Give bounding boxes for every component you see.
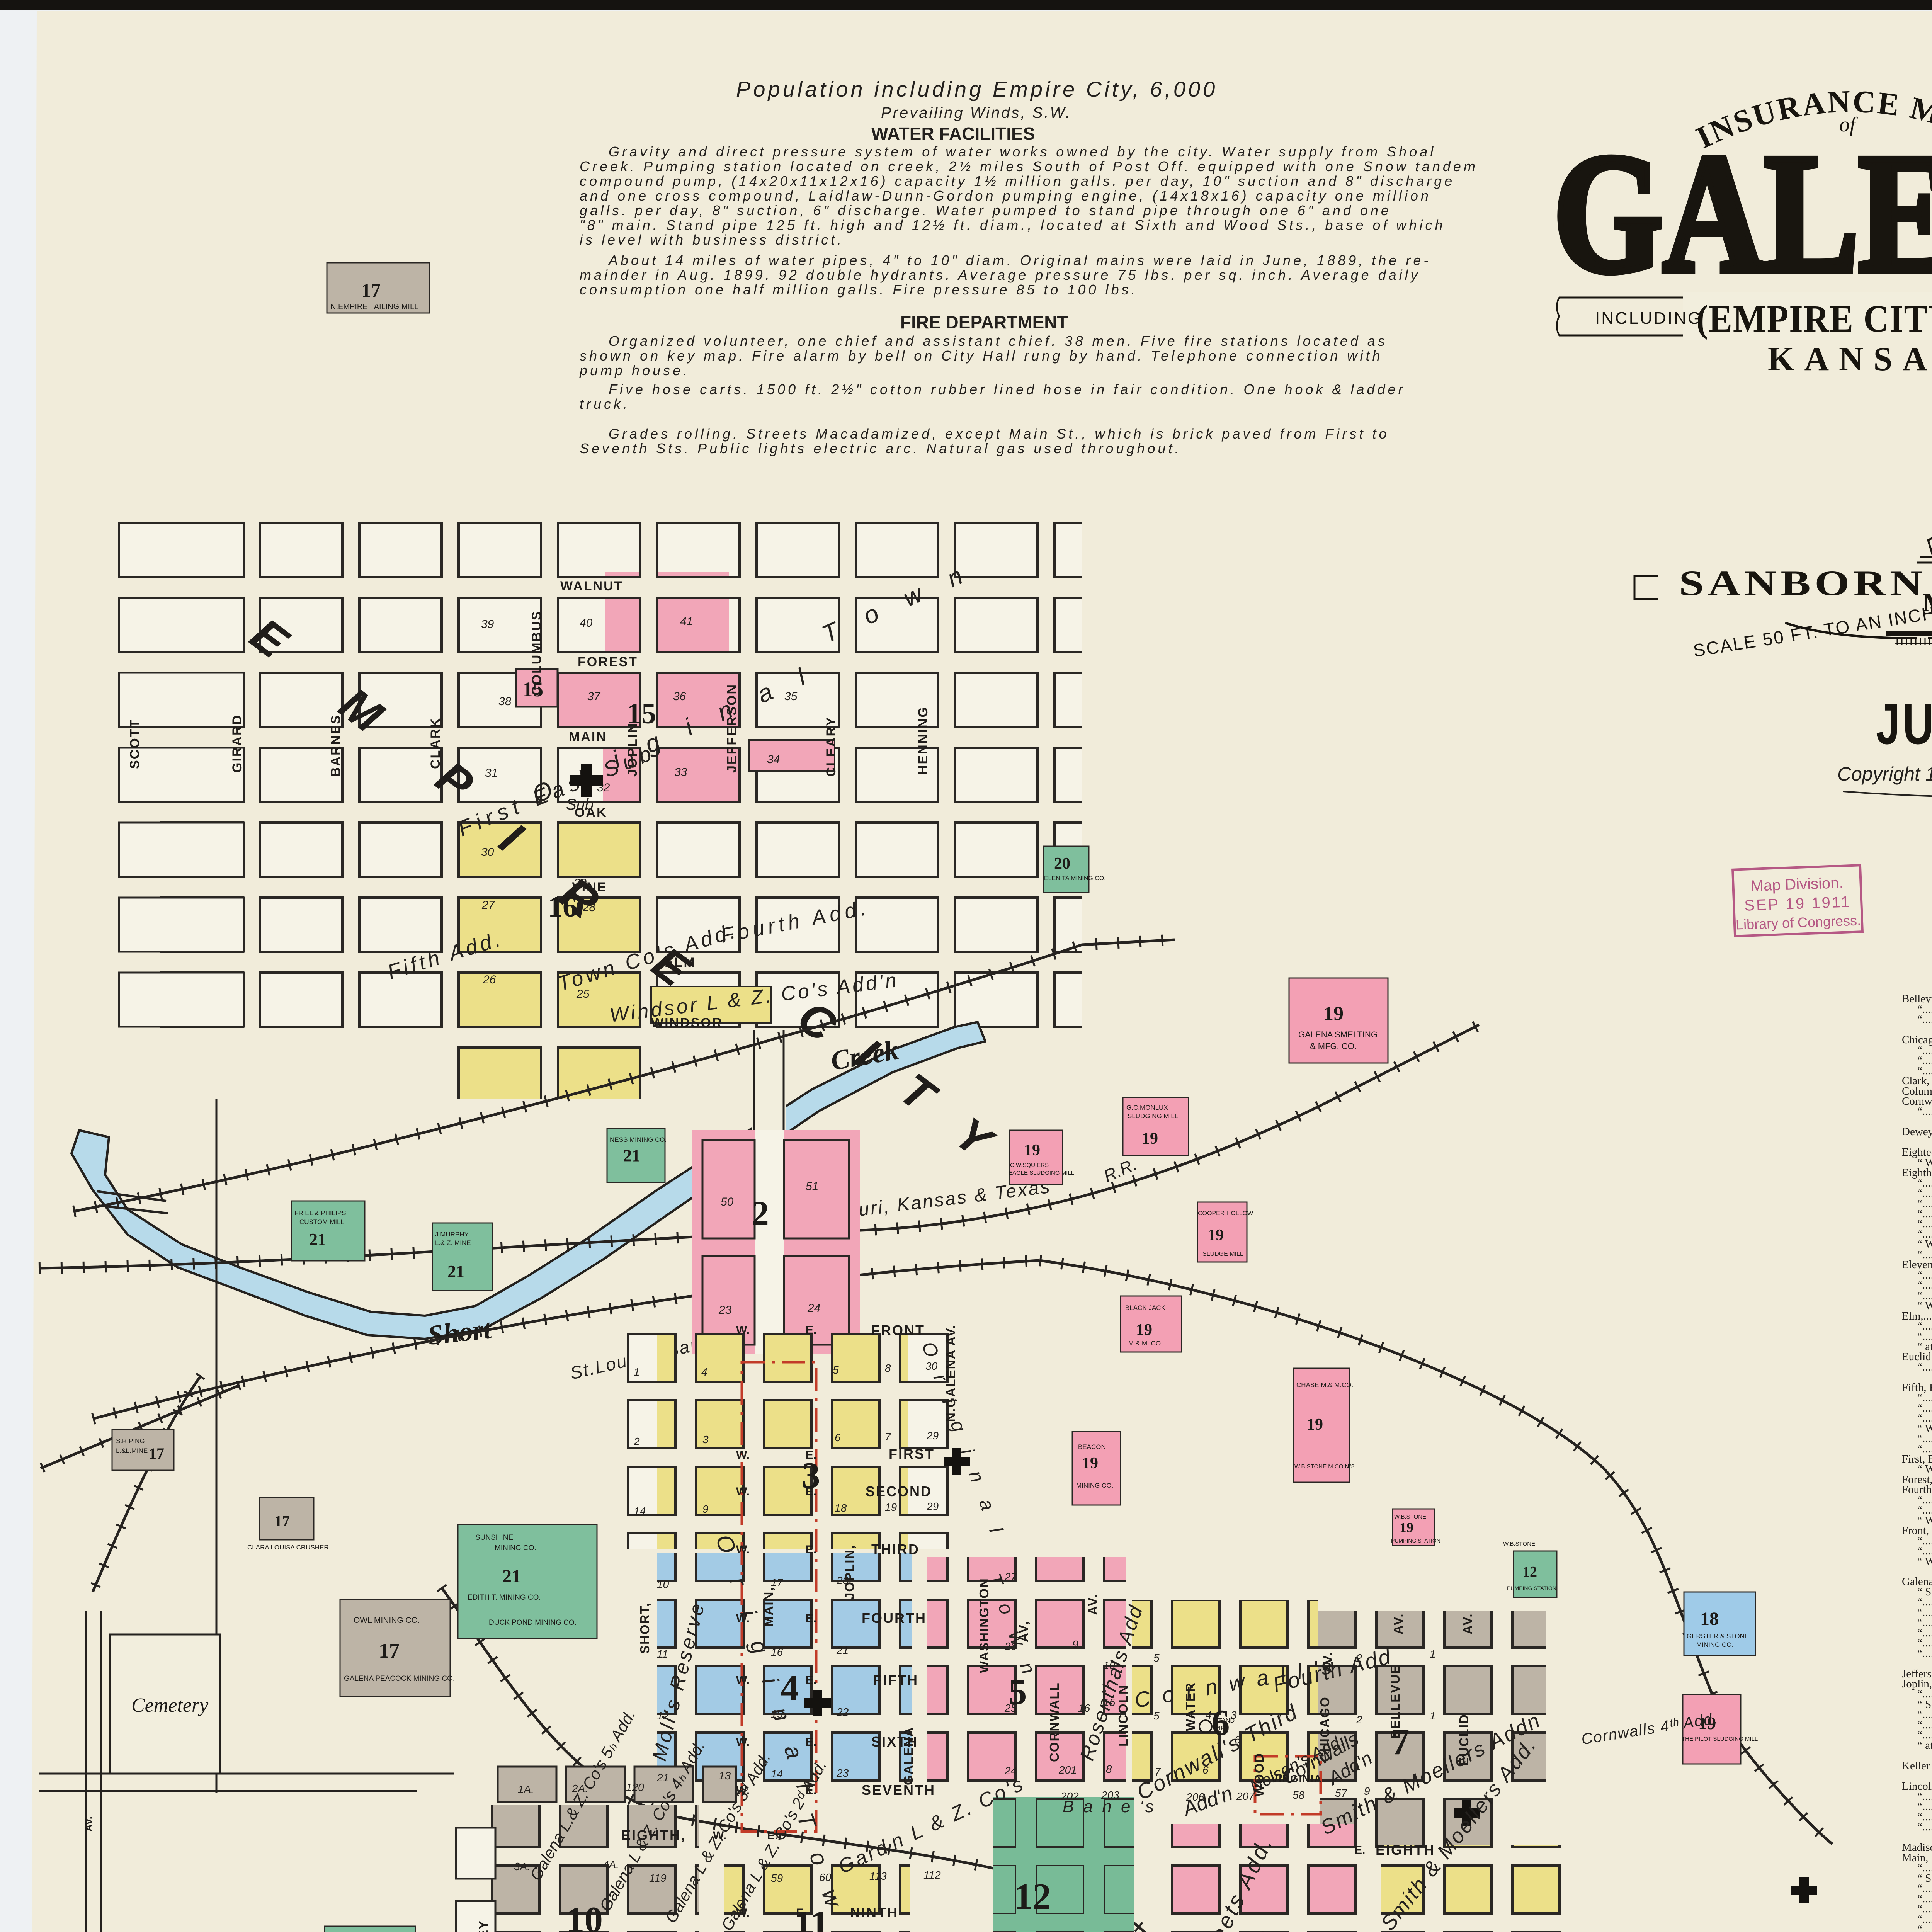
svg-text:1: 1 [1430, 1710, 1436, 1722]
svg-text:Population including Empire Ci: Population including Empire City, 6,000 [736, 77, 1218, 101]
svg-text:1: 1 [1430, 1648, 1436, 1660]
svg-text:19: 19 [1207, 1226, 1224, 1244]
svg-text:GALENA PEACOCK MINING CO.: GALENA PEACOCK MINING CO. [344, 1675, 455, 1683]
svg-text:W.B.STONE: W.B.STONE [1394, 1514, 1426, 1520]
svg-text:SECOND: SECOND [866, 1483, 932, 1499]
svg-text:6: 6 [1235, 1734, 1241, 1746]
svg-text:GERSTER & STONE: GERSTER & STONE [1687, 1633, 1749, 1640]
svg-text:N.EMPIRE TAILING MILL: N.EMPIRE TAILING MILL [330, 303, 418, 311]
svg-text:OWL MINING CO.: OWL MINING CO. [354, 1616, 420, 1625]
svg-text:WALNUT: WALNUT [560, 579, 623, 594]
svg-text:36: 36 [673, 690, 686, 703]
svg-text:6: 6 [835, 1432, 841, 1444]
svg-text:15: 15 [627, 697, 656, 730]
svg-text:202: 202 [1060, 1790, 1079, 1802]
svg-text:PIPE: PIPE [1215, 1725, 1229, 1732]
svg-text:19: 19 [1142, 1130, 1158, 1148]
svg-text:17: 17 [149, 1445, 164, 1462]
svg-text:30: 30 [481, 846, 494, 859]
svg-text:14: 14 [771, 1768, 783, 1780]
svg-text:FIRE DEPARTMENT: FIRE DEPARTMENT [900, 312, 1068, 332]
svg-text:CUSTOM MILL: CUSTOM MILL [299, 1218, 344, 1226]
svg-text:26: 26 [1004, 1640, 1017, 1652]
svg-text:31: 31 [485, 767, 498, 779]
svg-text:CORNWALL: CORNWALL [1047, 1682, 1061, 1762]
svg-text:2A.: 2A. [571, 1782, 588, 1794]
svg-text:Keller Ave.,..................: Keller Ave.,............................… [1902, 1760, 1932, 1772]
svg-text:4: 4 [701, 1366, 707, 1378]
svg-text:23: 23 [718, 1304, 732, 1316]
svg-text:W.: W. [736, 1674, 750, 1687]
svg-text:WINDSOR: WINDSOR [651, 1015, 723, 1030]
svg-text:NESS MINING CO.: NESS MINING CO. [610, 1136, 667, 1143]
svg-text:7: 7 [885, 1431, 891, 1443]
svg-text:SHORT,: SHORT, [638, 1602, 652, 1654]
svg-text:21: 21 [656, 1772, 669, 1784]
svg-text:Seventh Sts. Public lights el: Seventh Sts. Public lights electric arc.… [580, 440, 1182, 456]
svg-text:21: 21 [623, 1146, 640, 1165]
svg-text:120: 120 [626, 1781, 644, 1793]
svg-text:60: 60 [819, 1871, 832, 1883]
svg-text:E.: E. [806, 1612, 816, 1625]
svg-text:“.............................: “.......................................… [1917, 1013, 1932, 1026]
svg-text:17: 17 [771, 1577, 784, 1588]
svg-text:17: 17 [379, 1639, 400, 1662]
svg-text:21: 21 [836, 1644, 849, 1656]
svg-text:JEFFERSON: JEFFERSON [724, 684, 739, 773]
svg-text:G.C.MONLUX: G.C.MONLUX [1126, 1104, 1168, 1111]
svg-text:Organized volunteer, one chief: Organized volunteer, one chief and assis… [609, 333, 1388, 349]
svg-text:E.: E. [796, 1906, 807, 1919]
svg-text:113: 113 [869, 1870, 887, 1882]
svg-text:13: 13 [719, 1770, 731, 1782]
svg-text:30: 30 [925, 1360, 938, 1372]
svg-text:29: 29 [926, 1500, 939, 1512]
svg-text:SCOTT: SCOTT [128, 719, 142, 769]
svg-text:W.: W. [736, 1449, 750, 1461]
svg-text:35: 35 [784, 690, 798, 703]
svg-text:29: 29 [926, 1430, 939, 1442]
svg-text:20: 20 [1054, 855, 1070, 872]
svg-text:DUCK POND MINING CO.: DUCK POND MINING CO. [489, 1619, 577, 1627]
svg-text:3: 3 [1231, 1709, 1237, 1721]
svg-text:COOPER HOLLOW: COOPER HOLLOW [1198, 1210, 1253, 1217]
svg-text:GALENA: GALENA [1553, 119, 1932, 308]
svg-text:207: 207 [1236, 1790, 1255, 1802]
svg-text:Cemetery: Cemetery [131, 1694, 209, 1716]
svg-text:21: 21 [447, 1262, 464, 1281]
svg-text:38: 38 [498, 695, 512, 708]
svg-text:EIGHTH: EIGHTH [1376, 1842, 1435, 1858]
svg-text:201: 201 [1058, 1764, 1077, 1776]
svg-text:5: 5 [1153, 1652, 1160, 1664]
svg-text:21: 21 [502, 1566, 521, 1587]
svg-text:AV.: AV. [1391, 1613, 1405, 1634]
svg-text:21: 21 [309, 1230, 326, 1249]
svg-text:4A.: 4A. [603, 1859, 619, 1871]
svg-text:BARNES: BARNES [328, 714, 343, 777]
svg-text:1: 1 [634, 1366, 640, 1378]
svg-text:16: 16 [1078, 1702, 1090, 1714]
svg-text:pump house.: pump house. [579, 362, 690, 378]
svg-text:is level with business distric: is level with business district. [580, 232, 844, 248]
svg-text:GIRARD: GIRARD [230, 714, 245, 773]
svg-text:22: 22 [836, 1706, 849, 1718]
svg-text:1A.: 1A. [518, 1783, 534, 1795]
svg-text:“ at Empire City,..........: “ at Empire City,.......................… [1917, 1739, 1932, 1752]
svg-text:2: 2 [752, 1194, 769, 1233]
svg-text:M.& M. CO.: M.& M. CO. [1128, 1340, 1163, 1347]
svg-text:E.: E. [1354, 1844, 1365, 1857]
svg-text:8: 8 [1106, 1763, 1112, 1775]
svg-text:206: 206 [1186, 1791, 1204, 1803]
svg-text:10: 10 [1103, 1660, 1116, 1672]
svg-text:2: 2 [1356, 1714, 1362, 1726]
svg-text:41: 41 [680, 615, 693, 628]
svg-text:& MFG. CO.: & MFG. CO. [1310, 1041, 1357, 1051]
svg-text:L.&L.MINE: L.&L.MINE [116, 1447, 148, 1454]
svg-text:MINING CO.: MINING CO. [1076, 1482, 1113, 1489]
svg-text:20: 20 [836, 1575, 849, 1587]
svg-text:GALENA SMELTING: GALENA SMELTING [1298, 1030, 1378, 1039]
svg-text:“.............................: “.......................................… [1917, 1647, 1932, 1660]
svg-text:“.............................: “.......................................… [1917, 1821, 1932, 1833]
svg-text:203: 203 [1101, 1789, 1119, 1801]
svg-text:HENNING: HENNING [916, 706, 930, 775]
svg-text:15: 15 [771, 1708, 783, 1720]
svg-text:16: 16 [771, 1646, 783, 1658]
svg-text:E.: E. [806, 1324, 816, 1337]
svg-text:galls. per day, 8" suction, 6: galls. per day, 8" suction, 6" discharge… [580, 202, 1391, 218]
svg-text:25: 25 [1004, 1702, 1017, 1714]
svg-text:2: 2 [1356, 1652, 1362, 1664]
svg-text:28: 28 [582, 901, 596, 914]
svg-text:29: 29 [573, 877, 587, 889]
svg-text:19: 19 [1400, 1520, 1413, 1535]
svg-text:KANSAS: KANSAS [1768, 340, 1932, 378]
svg-text:AV.: AV. [1252, 1930, 1266, 1932]
svg-text:6: 6 [1202, 1764, 1209, 1776]
svg-text:3A.: 3A. [514, 1861, 530, 1872]
svg-text:THE PILOT SLUDGING MILL: THE PILOT SLUDGING MILL [1682, 1736, 1758, 1742]
svg-text:57: 57 [1335, 1787, 1348, 1799]
svg-text:Creek. Pumping station locate: Creek. Pumping station located on creek,… [580, 158, 1478, 174]
svg-text:Prevailing Winds, S.W.: Prevailing Winds, S.W. [881, 104, 1071, 121]
svg-text:3: 3 [702, 1434, 709, 1446]
svg-text:5: 5 [1153, 1710, 1160, 1722]
svg-text:39: 39 [481, 618, 494, 631]
svg-text:ELENITA MINING CO.: ELENITA MINING CO. [1044, 875, 1106, 882]
svg-text:MINING CO.: MINING CO. [495, 1544, 536, 1552]
svg-text:PUMPING STATION: PUMPING STATION [1507, 1585, 1556, 1591]
svg-text:AV.: AV. [1086, 1594, 1100, 1615]
svg-text:W.: W. [736, 1485, 750, 1498]
svg-text:14: 14 [634, 1505, 646, 1517]
svg-text:W.B.STONE M.CO.Nº8: W.B.STONE M.CO.Nº8 [1294, 1463, 1354, 1470]
svg-text:9: 9 [1364, 1785, 1370, 1797]
svg-text:Copyright 1911, by the Sanborn: Copyright 1911, by the Sanborn Map Co. [1837, 763, 1932, 785]
svg-text:S.R.PING: S.R.PING [116, 1437, 145, 1445]
svg-text:50: 50 [721, 1196, 734, 1208]
svg-text:17: 17 [274, 1512, 290, 1530]
svg-text:Sub: Sub [566, 796, 594, 813]
svg-text:Map Division.: Map Division. [1750, 874, 1844, 895]
svg-text:E.: E. [806, 1736, 816, 1748]
svg-text:15: 15 [522, 678, 543, 701]
svg-text:112: 112 [923, 1869, 941, 1881]
svg-text:11: 11 [657, 1648, 668, 1660]
svg-text:ELM: ELM [665, 955, 696, 970]
svg-text:consumption one half million g: consumption one half million galls. Fire… [580, 282, 1138, 298]
svg-text:SLUDGE MILL: SLUDGE MILL [1202, 1251, 1243, 1257]
svg-text:(EMPIRE CITY): (EMPIRE CITY) [1696, 297, 1932, 340]
svg-text:15: 15 [1103, 1696, 1116, 1708]
svg-text:19: 19 [885, 1501, 897, 1513]
svg-text:JULY 1911: JULY 1911 [1876, 691, 1932, 756]
svg-text:MINING CO.: MINING CO. [1696, 1641, 1733, 1648]
svg-text:VIRGINIA: VIRGINIA [1271, 1773, 1322, 1784]
svg-text:SANBORN: SANBORN [1679, 563, 1926, 603]
svg-text:FRONT: FRONT [871, 1322, 925, 1338]
svg-text:19: 19 [1323, 1003, 1344, 1025]
svg-text:EAGLE SLUDGING MILL: EAGLE SLUDGING MILL [1009, 1170, 1074, 1176]
svg-text:FRIEL & PHILIPS: FRIEL & PHILIPS [294, 1209, 346, 1217]
svg-text:E.: E. [806, 1543, 816, 1556]
svg-text:E.: E. [806, 1674, 816, 1687]
svg-text:“.............................: “.......................................… [1917, 1105, 1932, 1117]
svg-text:"8" main. Stand pipe 125 ft.: "8" main. Stand pipe 125 ft. high and 12… [580, 217, 1446, 233]
svg-text:DEWEY: DEWEY [476, 1920, 490, 1932]
svg-text:Grades rolling. Streets Maca: Grades rolling. Streets Macadamized, exc… [609, 426, 1389, 442]
svg-text:26: 26 [483, 973, 496, 986]
svg-text:AV.: AV. [1461, 1613, 1475, 1634]
svg-text:7: 7 [1155, 1766, 1161, 1778]
svg-text:19: 19 [1082, 1454, 1098, 1472]
svg-text:24: 24 [807, 1302, 820, 1315]
svg-text:27: 27 [481, 899, 495, 912]
svg-text:THIRD: THIRD [871, 1541, 920, 1557]
svg-text:“ W.,......................: “ W.,...................................… [1917, 1555, 1932, 1568]
svg-text:CLARK: CLARK [428, 717, 443, 769]
svg-text:9: 9 [1072, 1638, 1078, 1650]
svg-text:119: 119 [649, 1872, 667, 1884]
svg-text:E.: E. [806, 1485, 816, 1498]
svg-text:E.: E. [806, 1449, 816, 1461]
svg-text:“.............................: “.......................................… [1917, 1361, 1932, 1373]
svg-text:“.............................: “.......................................… [1917, 1923, 1932, 1932]
svg-text:MAIN: MAIN [569, 730, 607, 744]
svg-text:BEACON: BEACON [1078, 1443, 1106, 1451]
svg-text:AV.: AV. [83, 1816, 94, 1832]
svg-text:4: 4 [1206, 1709, 1212, 1721]
svg-text:PUMPING STATION: PUMPING STATION [1391, 1537, 1440, 1544]
svg-text:9: 9 [702, 1503, 709, 1515]
svg-text:12: 12 [1014, 1876, 1051, 1917]
svg-text:Five hose carts. 1500 ft. 2½": Five hose carts. 1500 ft. 2½" cotton rub… [609, 381, 1406, 397]
svg-text:BLACK JACK: BLACK JACK [1125, 1304, 1166, 1311]
svg-text:59: 59 [771, 1872, 783, 1884]
svg-text:27: 27 [1004, 1571, 1017, 1583]
svg-text:W.: W. [736, 1736, 750, 1748]
svg-text:10: 10 [657, 1578, 669, 1590]
svg-text:WATER FACILITIES: WATER FACILITIES [871, 124, 1035, 144]
svg-text:40: 40 [580, 617, 593, 629]
svg-text:INCLUDING: INCLUDING [1595, 309, 1702, 328]
svg-text:23: 23 [836, 1767, 849, 1779]
svg-text:GALENA: GALENA [901, 1727, 915, 1785]
svg-text:18: 18 [1700, 1609, 1719, 1629]
svg-text:18: 18 [835, 1502, 847, 1514]
svg-text:Gravity and direct pressure sy: Gravity and direct pressure system of wa… [609, 144, 1436, 160]
svg-text:CLEARY: CLEARY [824, 716, 838, 777]
svg-text:FIFTH: FIFTH [873, 1672, 918, 1688]
svg-text:19: 19 [1136, 1321, 1152, 1339]
svg-text:24: 24 [1004, 1765, 1017, 1777]
svg-text:NINTH: NINTH [850, 1905, 898, 1920]
svg-text:25: 25 [576, 988, 590, 1000]
svg-text:W.: W. [736, 1324, 750, 1337]
svg-text:and one cross compound, Laidla: and one cross compound, Laidlaw-Dunn-Gor… [580, 188, 1431, 204]
svg-text:33: 33 [674, 766, 687, 779]
svg-text:2: 2 [633, 1435, 640, 1447]
svg-text:12: 12 [1522, 1564, 1537, 1580]
svg-text:shown on key map. Fire alarm: shown on key map. Fire alarm by bell on … [580, 348, 1383, 364]
svg-text:mainder in Aug. 1899. 92 doub: mainder in Aug. 1899. 92 double hydrants… [580, 267, 1420, 283]
svg-text:EDITH T. MINING CO.: EDITH T. MINING CO. [468, 1594, 541, 1602]
svg-text:12: 12 [657, 1710, 669, 1722]
svg-text:34: 34 [767, 753, 780, 766]
svg-text:C.W.SQUIERS: C.W.SQUIERS [1010, 1162, 1049, 1168]
svg-text:19: 19 [1024, 1141, 1040, 1159]
svg-text:W.B.STONE: W.B.STONE [1503, 1541, 1535, 1547]
svg-text:FOREST: FOREST [578, 655, 638, 669]
svg-text:JOPLIN: JOPLIN [625, 722, 640, 777]
svg-text:CLARA LOUISA CRUSHER: CLARA LOUISA CRUSHER [247, 1544, 329, 1551]
svg-text:truck.: truck. [580, 396, 630, 412]
svg-text:58: 58 [1293, 1789, 1305, 1801]
svg-text:JOPLIN,: JOPLIN, [842, 1545, 857, 1600]
svg-text:Dewey,........................: Dewey,..................................… [1902, 1126, 1932, 1138]
svg-text:37: 37 [587, 690, 601, 703]
svg-text:SEVENTH: SEVENTH [862, 1782, 935, 1798]
svg-text:16: 16 [548, 891, 577, 923]
svg-text:L.& Z. MINE: L.& Z. MINE [435, 1239, 471, 1247]
svg-text:CHASE M.& M.CO.: CHASE M.& M.CO. [1296, 1381, 1353, 1389]
svg-text:FOURTH: FOURTH [862, 1610, 927, 1626]
svg-text:About 14 miles of water pipes,: About 14 miles of water pipes, 4" to 10"… [608, 252, 1431, 268]
svg-text:BELLEVUE: BELLEVUE [1388, 1665, 1402, 1739]
svg-text:8: 8 [885, 1362, 891, 1374]
svg-text:FIRST: FIRST [889, 1446, 935, 1462]
svg-text:17: 17 [361, 279, 381, 301]
svg-text:SUNSHINE: SUNSHINE [475, 1534, 513, 1542]
svg-text:5: 5 [833, 1364, 839, 1376]
svg-text:J.MURPHY: J.MURPHY [435, 1231, 469, 1238]
svg-text:compound pump, (14x20x11x12x16: compound pump, (14x20x11x12x16) capacity… [580, 173, 1455, 189]
svg-text:19: 19 [1307, 1416, 1323, 1434]
svg-text:51: 51 [806, 1180, 818, 1193]
svg-text:SLUDGING MILL: SLUDGING MILL [1128, 1112, 1178, 1120]
